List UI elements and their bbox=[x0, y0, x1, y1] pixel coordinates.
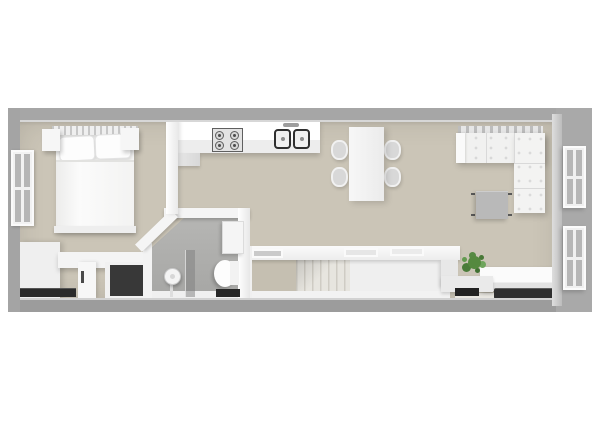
island-tray bbox=[390, 247, 424, 256]
living-window-lower bbox=[563, 226, 586, 290]
sofa-cushion-seam bbox=[514, 188, 545, 189]
island-tray bbox=[344, 248, 378, 257]
window-pane bbox=[24, 154, 30, 187]
sink-faucet bbox=[283, 123, 299, 127]
hob-burner bbox=[215, 141, 224, 150]
sofa-cushion-seam bbox=[514, 133, 515, 163]
stair-landing bbox=[252, 260, 296, 291]
gas-hob bbox=[212, 128, 243, 152]
stairwell-interior bbox=[252, 260, 450, 298]
hob-burner bbox=[215, 131, 224, 140]
potted-plant bbox=[468, 256, 481, 269]
window-pane bbox=[576, 179, 582, 205]
window-panes bbox=[15, 154, 30, 222]
stairwell-floor-strip bbox=[252, 291, 450, 298]
shower-pole bbox=[170, 284, 173, 297]
window-pane bbox=[15, 154, 21, 187]
hob-burner bbox=[230, 141, 239, 150]
coffee-table bbox=[476, 191, 508, 219]
window-pane bbox=[15, 190, 21, 223]
window-pane bbox=[567, 230, 573, 257]
sofa-cushion-seam bbox=[486, 133, 487, 163]
bed-duvet bbox=[56, 160, 134, 228]
window-pane bbox=[567, 179, 573, 205]
living-window-upper bbox=[563, 146, 586, 208]
dining-chair bbox=[384, 140, 401, 160]
shower-glass-screen bbox=[185, 250, 195, 297]
dining-chair bbox=[384, 167, 401, 187]
floor-vent-strip bbox=[14, 288, 76, 297]
bathroom-wall-left bbox=[143, 243, 152, 299]
coffee-table-leg bbox=[471, 193, 475, 195]
window-pane bbox=[576, 230, 582, 257]
outer-wall-top bbox=[8, 108, 592, 122]
dining-chair bbox=[331, 140, 348, 160]
hob-burner bbox=[230, 131, 239, 140]
window-pane bbox=[567, 150, 573, 176]
bathroom-wall-cabinet bbox=[222, 221, 244, 254]
ledge-dark-slot bbox=[455, 288, 479, 296]
sofa-cushion-seam bbox=[514, 163, 545, 164]
kitchen-counter-return bbox=[178, 153, 200, 166]
dining-table bbox=[349, 127, 384, 201]
window-panes bbox=[567, 150, 582, 204]
cabinet-handle bbox=[81, 271, 84, 283]
bedroom-partition-wall bbox=[166, 120, 178, 214]
corner-sofa-chaise bbox=[514, 133, 545, 213]
island-tray-sink bbox=[252, 249, 283, 258]
window-pane bbox=[576, 150, 582, 176]
sink-basin-right bbox=[293, 129, 310, 149]
sink-basin-left bbox=[274, 129, 291, 149]
window-pane bbox=[567, 260, 573, 287]
window-pane bbox=[576, 260, 582, 287]
window-panes bbox=[567, 230, 582, 286]
nightstand-right bbox=[121, 128, 139, 150]
outer-wall-bottom bbox=[8, 298, 592, 312]
coffee-table-leg bbox=[508, 214, 512, 216]
coffee-table-leg bbox=[471, 214, 475, 216]
shower-head bbox=[164, 268, 181, 285]
right-wall-inner-face bbox=[552, 114, 562, 306]
window-pane bbox=[24, 190, 30, 223]
dining-chair bbox=[331, 167, 348, 187]
bed-footboard bbox=[54, 226, 136, 233]
pillow-left bbox=[58, 135, 95, 162]
sofa-armrest bbox=[456, 133, 465, 163]
bedroom-window bbox=[11, 150, 34, 226]
floorplan-render bbox=[0, 0, 600, 424]
nightstand-left bbox=[42, 129, 60, 151]
toilet-tank bbox=[230, 261, 239, 285]
coffee-table-leg bbox=[508, 193, 512, 195]
bath-mat bbox=[216, 289, 240, 297]
